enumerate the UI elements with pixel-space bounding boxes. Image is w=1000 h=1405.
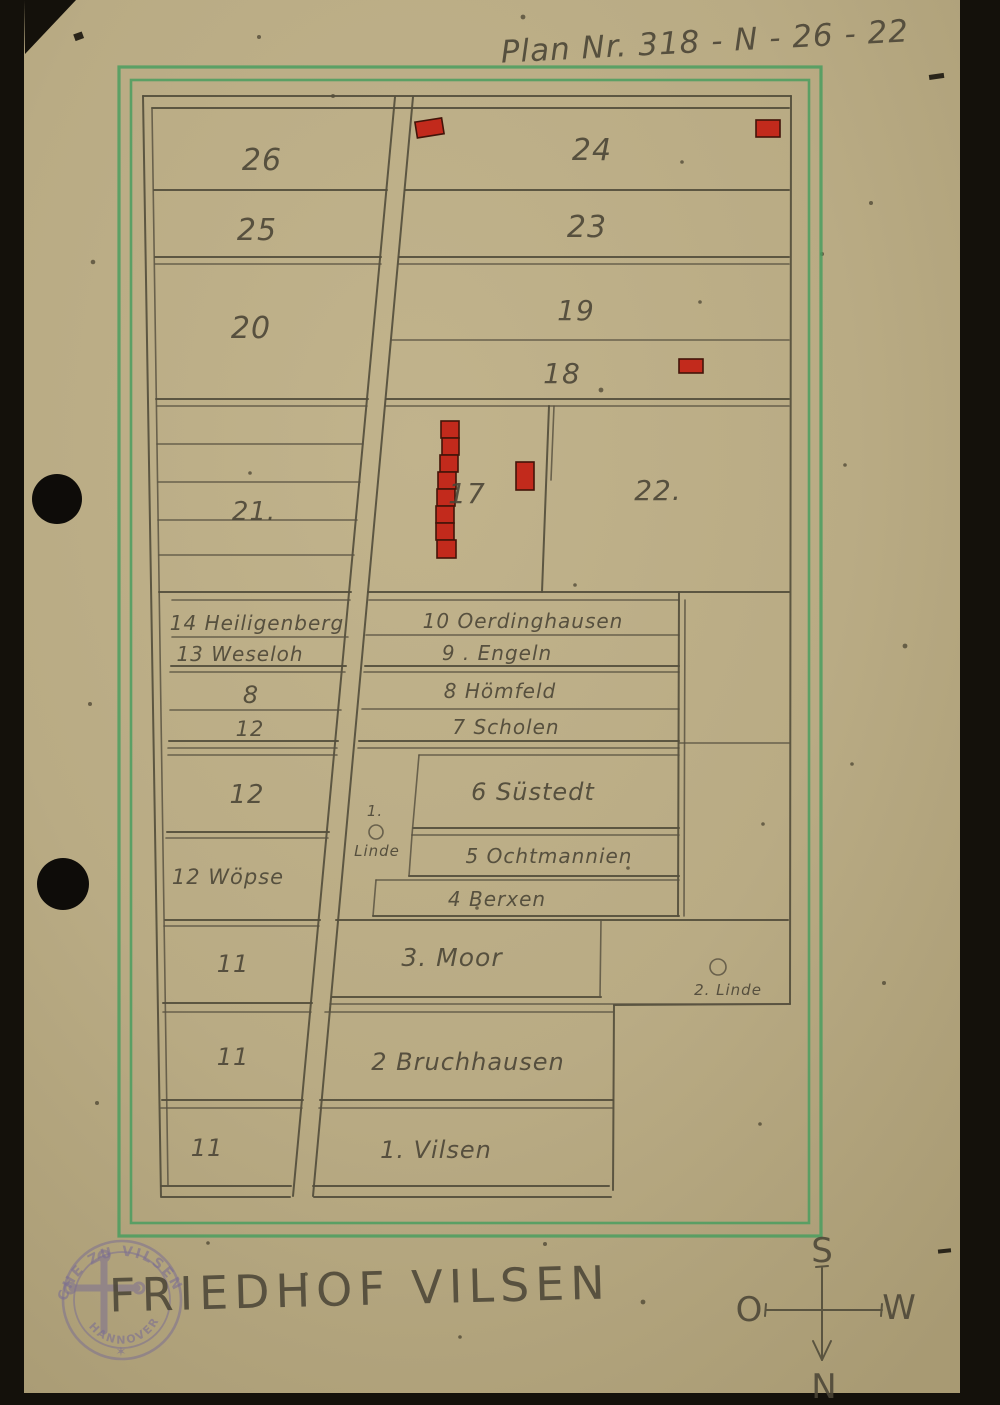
section-label-23: 23 bbox=[567, 210, 607, 245]
plan-canvas: Plan Nr. 318 - N - 26 - 22 bbox=[0, 0, 1000, 1405]
section-label-4-berxen: 4 Berxen bbox=[448, 887, 546, 911]
section-label-17: 17 bbox=[448, 477, 486, 510]
tree-2-name: 2. Linde bbox=[694, 981, 762, 999]
section-label-9-engeln: 9 . Engeln bbox=[442, 641, 552, 665]
compass-east-label: O bbox=[736, 1290, 763, 1330]
section-label-12-b: 12 bbox=[229, 780, 264, 810]
section-label-8-west: 8 bbox=[243, 681, 259, 709]
red-marker-section-18 bbox=[679, 359, 703, 373]
stamp-star: ✶ bbox=[116, 1345, 129, 1360]
section-label-25: 25 bbox=[237, 213, 277, 248]
section-label-10-oerdinghausen: 10 Oerdinghausen bbox=[423, 609, 624, 633]
section-label-19: 19 bbox=[557, 294, 595, 327]
section-label-5-ochtmannien: 5 Ochtmannien bbox=[466, 844, 633, 868]
section-label-1-vilsen: 1. Vilsen bbox=[380, 1136, 492, 1164]
tree-1-name: Linde bbox=[354, 842, 400, 860]
red-marker-section-17-single bbox=[516, 462, 534, 490]
tree-1-number: 1. bbox=[367, 802, 383, 820]
section-label-21: 21. bbox=[232, 497, 276, 527]
punch-hole bbox=[37, 858, 89, 910]
section-label-26: 26 bbox=[242, 143, 282, 178]
section-label-24: 24 bbox=[572, 133, 612, 168]
section-label-11-b: 11 bbox=[217, 1043, 250, 1071]
section-label-12-a: 12 bbox=[236, 717, 265, 741]
section-label-22: 22. bbox=[634, 474, 682, 507]
compass-south-label: S bbox=[811, 1231, 833, 1271]
section-label-7-scholen: 7 Scholen bbox=[452, 715, 559, 739]
section-label-8-homfeld: 8 Hömfeld bbox=[444, 679, 556, 703]
red-marker-path-top bbox=[415, 118, 444, 138]
section-label-20: 20 bbox=[231, 311, 271, 346]
punch-hole bbox=[32, 474, 82, 524]
section-label-14-heiligenberg: 14 Heiligenberg bbox=[170, 611, 344, 635]
section-label-11-a: 11 bbox=[217, 950, 250, 978]
section-label-3-moor: 3. Moor bbox=[401, 943, 503, 972]
section-label-11-c: 11 bbox=[191, 1134, 224, 1162]
section-label-6-sustedt: 6 Süstedt bbox=[471, 778, 595, 806]
section-label-18: 18 bbox=[543, 357, 581, 390]
compass-north-label: N bbox=[811, 1367, 836, 1405]
section-label-2-bruchhausen: 2 Bruchhausen bbox=[371, 1048, 564, 1076]
compass-west-label: W bbox=[882, 1288, 916, 1328]
section-label-13-weseloh: 13 Weseloh bbox=[176, 642, 303, 666]
scanned-cemetery-plan-page: Plan Nr. 318 - N - 26 - 22 bbox=[0, 0, 1000, 1405]
red-marker-section-24 bbox=[756, 120, 780, 137]
section-label-12-wopse: 12 Wöpse bbox=[172, 865, 284, 889]
